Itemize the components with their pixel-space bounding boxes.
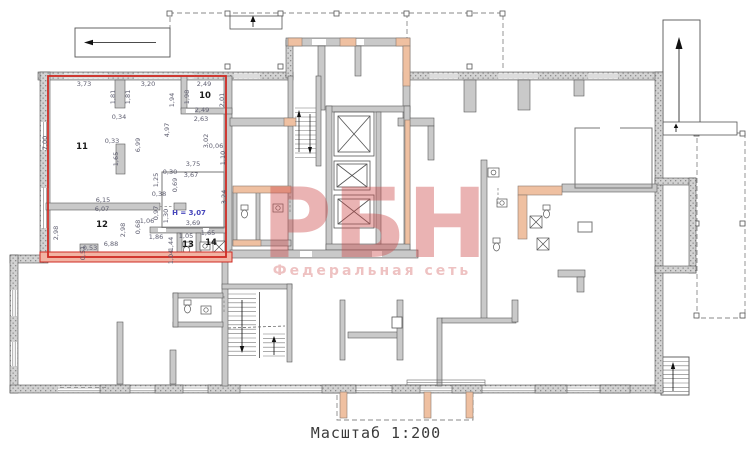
sink-icon [497, 199, 507, 207]
accent-walls [233, 38, 562, 418]
wall-piers [464, 80, 584, 112]
ramp-top-left [75, 28, 170, 57]
scale-caption: Масштаб 1:200 [311, 424, 441, 442]
elevator-shafts [334, 112, 374, 228]
vent-icon [537, 238, 549, 250]
stair-main [228, 292, 285, 358]
toilet-icon [493, 238, 500, 251]
floor-plan-screenshot: 3,733,202,491,811,811,941,982,010,342,49… [0, 0, 750, 452]
ramp-top-center [230, 16, 282, 30]
sink-icon [273, 204, 283, 212]
exterior-stair-bottom-right [661, 357, 689, 395]
sink-icon [201, 306, 211, 314]
unit-outline [40, 76, 232, 262]
stair-core-top [295, 108, 316, 158]
toilet-icon [241, 205, 248, 218]
toilet-icon [543, 205, 550, 218]
vent-icon [530, 216, 542, 228]
floor-plan-drawing [0, 0, 750, 452]
vent-icon [213, 241, 225, 253]
sink-icon [488, 168, 499, 177]
sink-icon [200, 242, 210, 250]
ramp-right [663, 20, 737, 135]
toilet-icon [184, 300, 191, 313]
